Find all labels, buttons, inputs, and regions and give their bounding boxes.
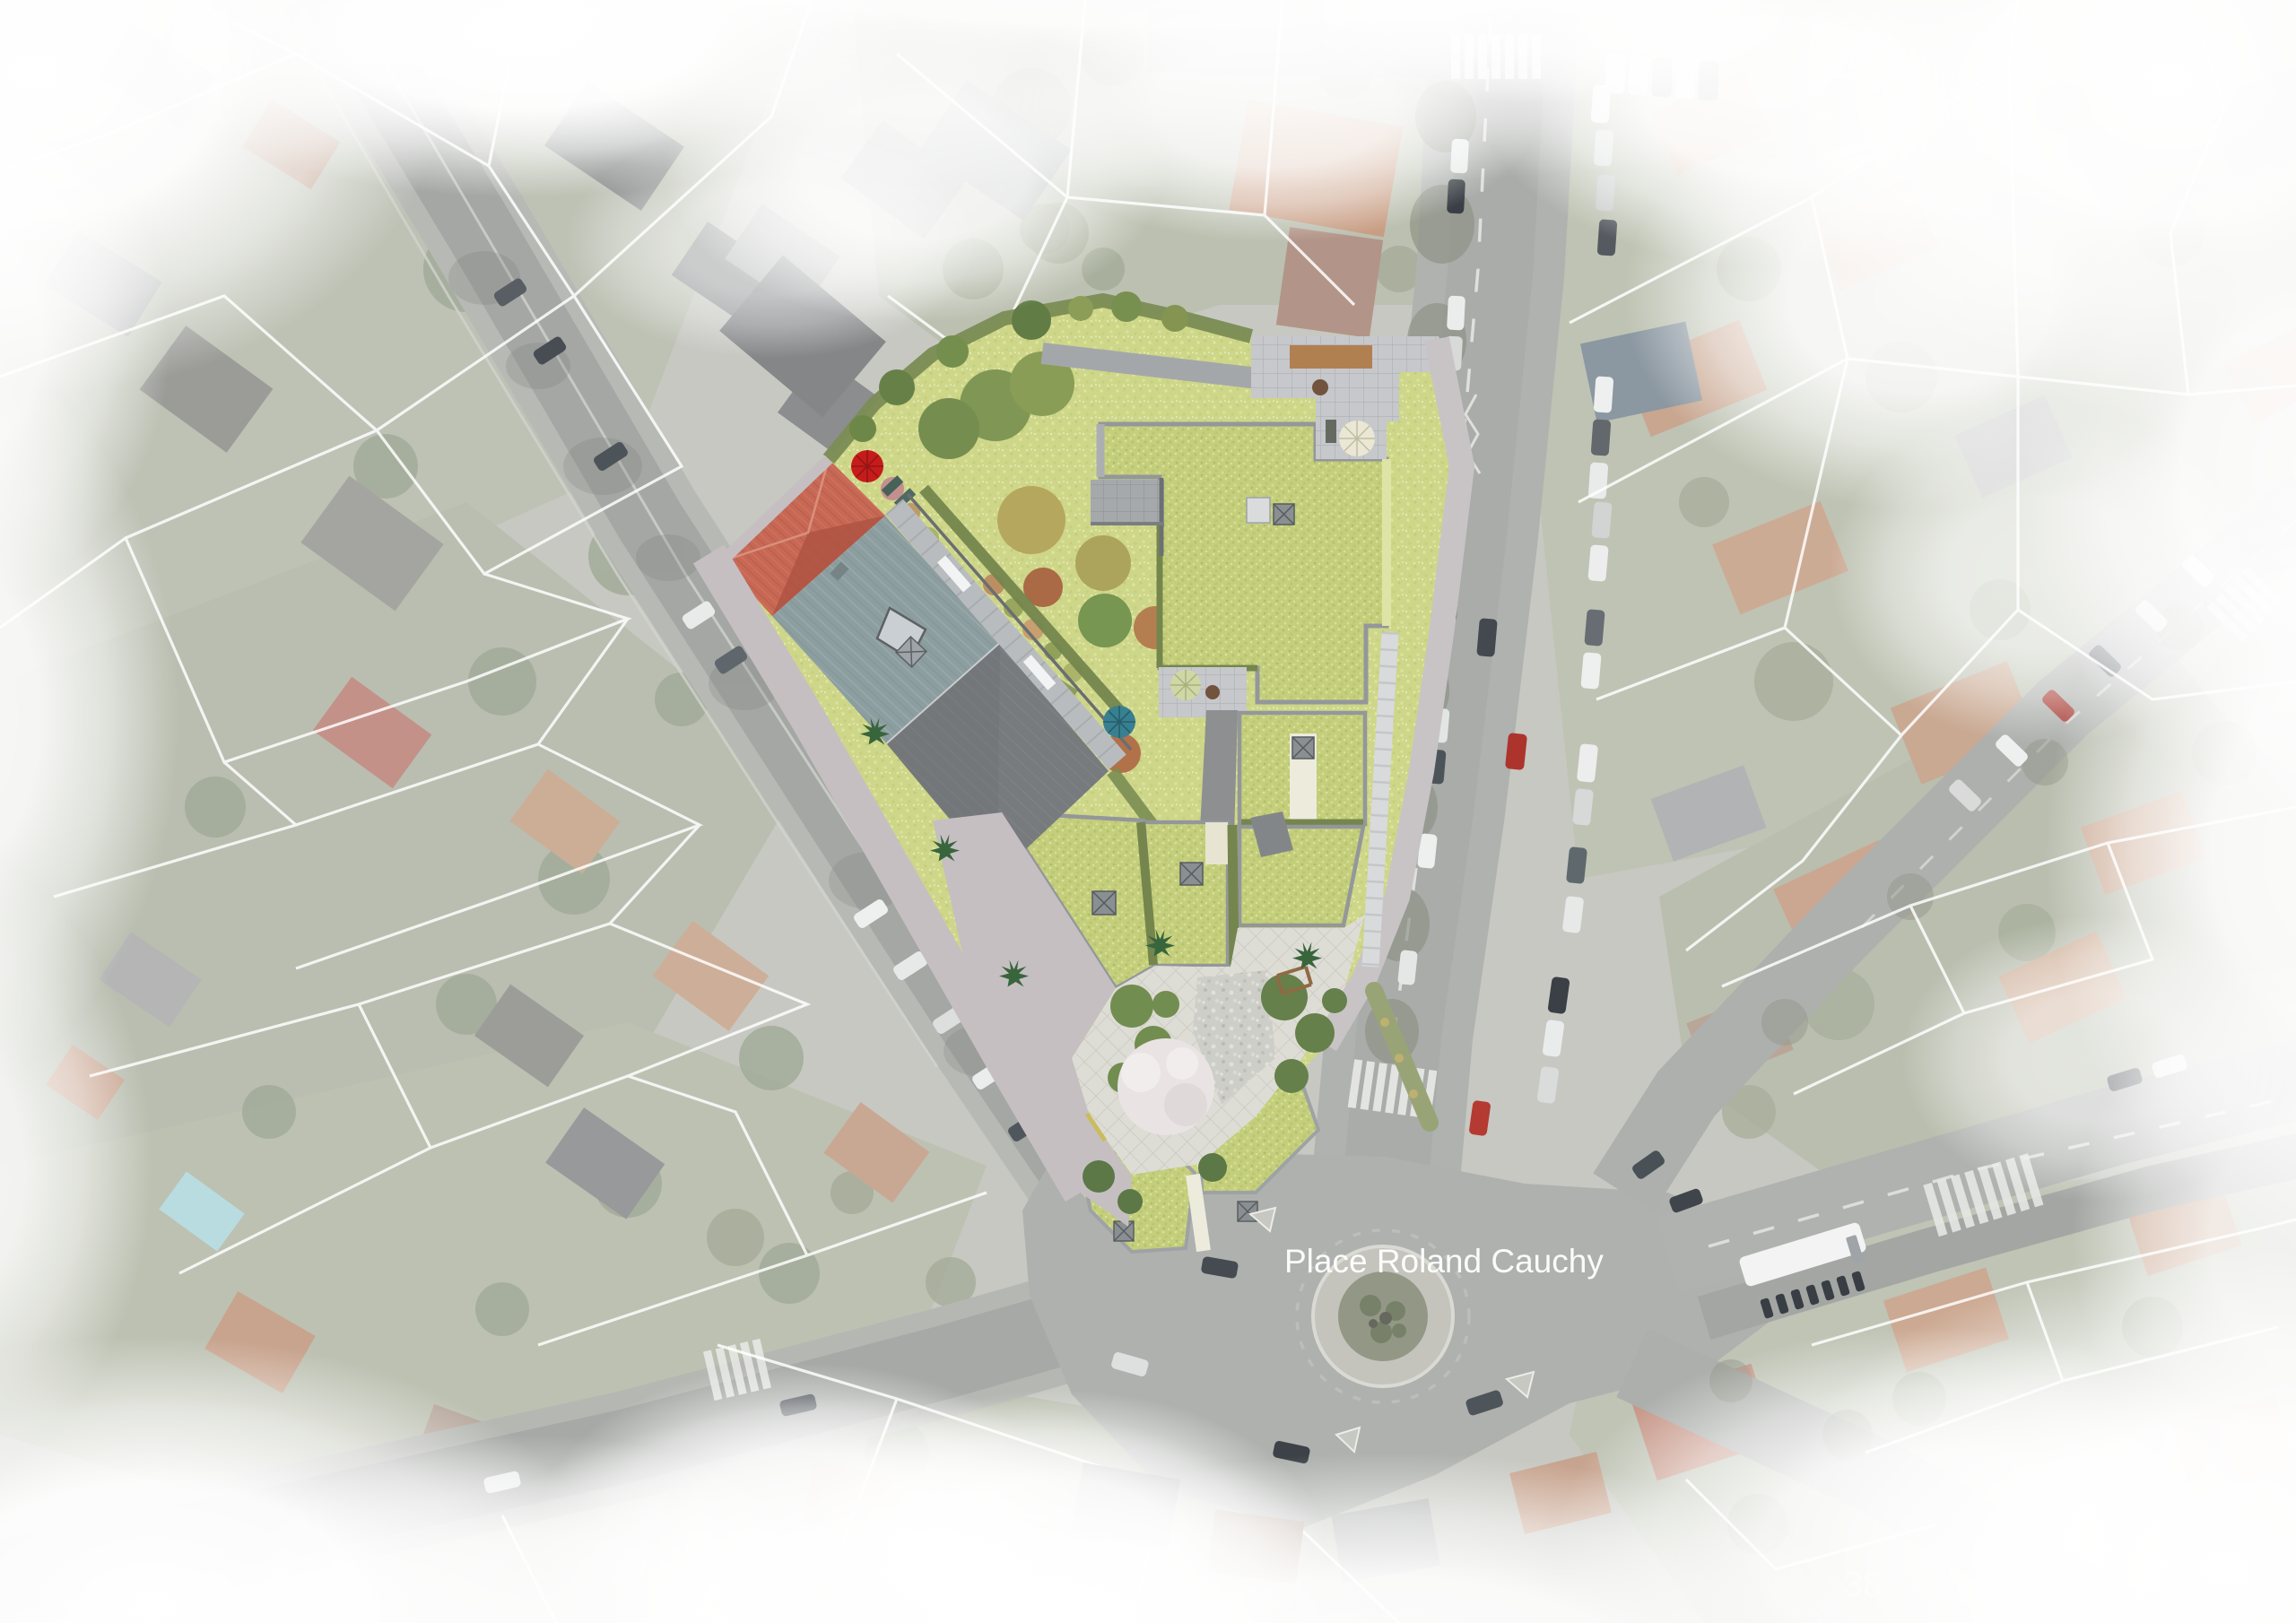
svg-text:151: 151 xyxy=(1830,48,1883,84)
svg-text:Place Roland Cauchy: Place Roland Cauchy xyxy=(1284,1243,1604,1280)
svg-text:38: 38 xyxy=(1843,1565,1883,1604)
